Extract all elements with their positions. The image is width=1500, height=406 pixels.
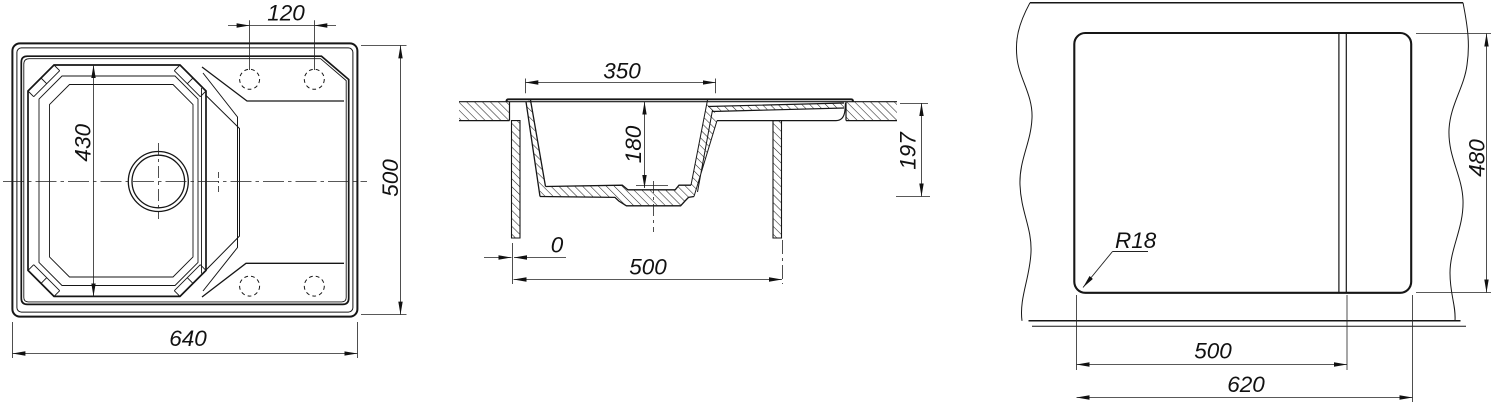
svg-text:620: 620 [1227,372,1265,397]
svg-text:500: 500 [378,159,403,197]
svg-text:0: 0 [551,232,564,257]
svg-text:197: 197 [896,131,921,170]
svg-text:430: 430 [70,124,95,162]
svg-text:180: 180 [621,125,646,163]
svg-text:350: 350 [603,59,641,84]
svg-text:640: 640 [169,326,207,351]
svg-text:480: 480 [1465,139,1490,177]
svg-text:R18: R18 [1115,228,1157,253]
svg-text:500: 500 [1194,338,1232,363]
svg-text:120: 120 [267,0,305,25]
svg-text:500: 500 [629,255,667,280]
